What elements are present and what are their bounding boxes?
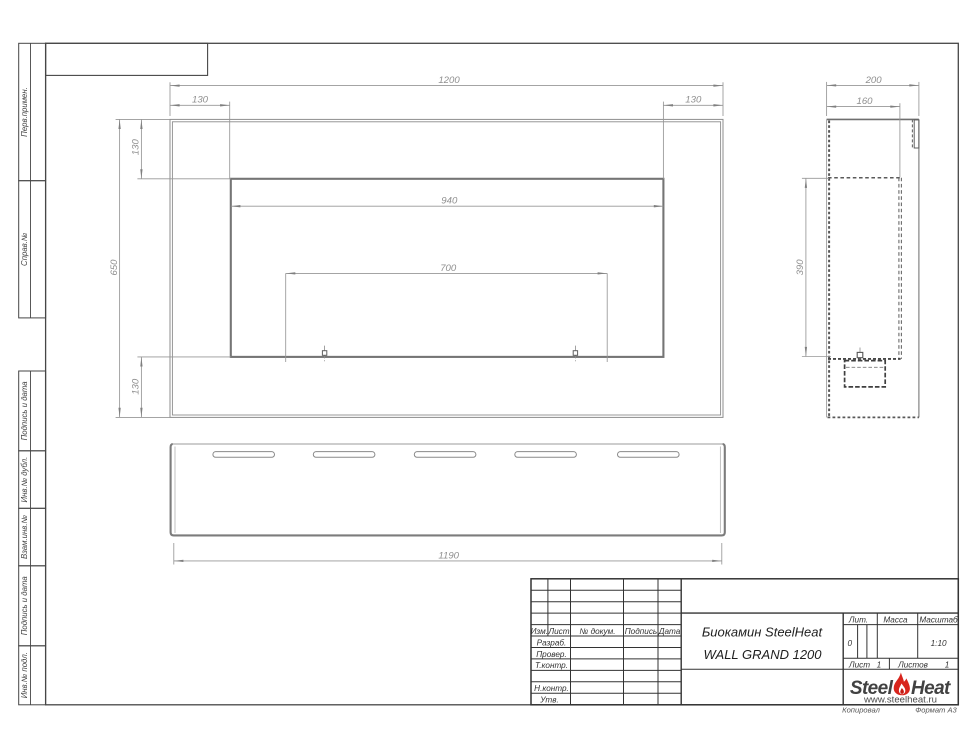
svg-text:№ докум.: № докум. [579,627,615,636]
svg-text:390: 390 [795,259,806,276]
svg-text:700: 700 [440,263,457,274]
svg-text:Масштаб: Масштаб [919,616,958,625]
svg-text:Инв.№ подл.: Инв.№ подл. [20,652,29,698]
svg-text:1: 1 [945,660,950,669]
svg-text:Взам.инв.№: Взам.инв.№ [20,515,29,559]
svg-text:Лист: Лист [547,627,569,636]
svg-text:Справ.№: Справ.№ [20,233,29,266]
svg-text:Н.контр.: Н.контр. [534,684,569,693]
svg-text:Лист: Лист [848,660,870,669]
svg-text:www.steelheat.ru: www.steelheat.ru [863,694,937,705]
svg-text:Биокамин SteelHeat: Биокамин SteelHeat [702,624,824,639]
svg-text:1:10: 1:10 [931,639,947,648]
svg-text:Инв.№ дубл.: Инв.№ дубл. [20,457,29,503]
svg-text:130: 130 [130,378,141,395]
svg-text:WALL GRAND 1200: WALL GRAND 1200 [703,647,822,662]
svg-text:Подпись: Подпись [625,627,657,636]
svg-text:Утв.: Утв. [539,696,559,705]
svg-text:940: 940 [441,196,458,207]
svg-text:200: 200 [865,75,883,86]
svg-text:Подпись и дата: Подпись и дата [20,381,29,441]
svg-text:Листов: Листов [897,660,929,669]
svg-text:1200: 1200 [438,75,460,86]
svg-text:Дата: Дата [658,627,681,636]
svg-text:130: 130 [685,95,702,106]
svg-text:Провер.: Провер. [536,650,567,659]
svg-text:130: 130 [192,95,209,106]
svg-text:160: 160 [856,96,873,107]
svg-text:Перв.примен.: Перв.примен. [20,87,29,137]
svg-text:Подпись и дата: Подпись и дата [20,576,29,636]
svg-text:Масса: Масса [883,616,908,625]
svg-text:0: 0 [848,639,853,648]
svg-text:1190: 1190 [438,550,459,561]
svg-text:Формат А3: Формат А3 [915,705,957,714]
svg-text:Лит.: Лит. [848,616,868,625]
svg-text:130: 130 [130,139,141,156]
svg-text:1: 1 [877,660,882,669]
svg-text:Изм.: Изм. [531,627,548,636]
svg-text:Копировал: Копировал [842,705,880,714]
svg-text:Разраб.: Разраб. [537,638,567,647]
svg-text:Т.контр.: Т.контр. [535,661,568,670]
svg-text:650: 650 [109,259,120,276]
